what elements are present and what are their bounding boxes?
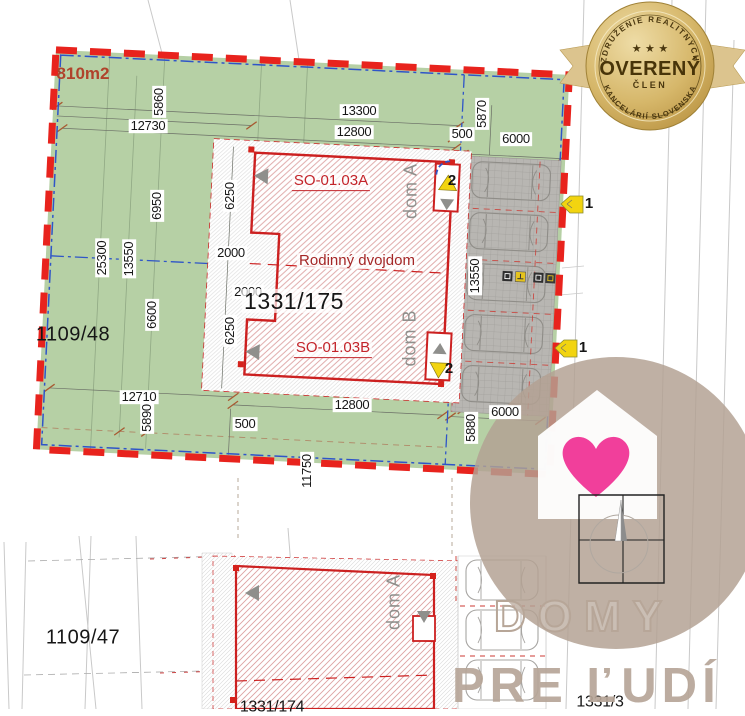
dim-label-5870: 5870 xyxy=(475,98,489,130)
entrance-marker-label-bottom: 2 xyxy=(445,361,453,377)
dim-label-25300: 25300 xyxy=(95,239,109,278)
parcel-label-1109-47: 1109/47 xyxy=(46,628,120,649)
dim-label-6250-bottom: 6250 xyxy=(223,315,237,347)
dim-label-500-bottom: 500 xyxy=(233,417,258,431)
dim-label-11750: 11750 xyxy=(300,452,314,490)
dim-label-12800-top: 12800 xyxy=(335,125,374,139)
dim-label-6000-top: 6000 xyxy=(500,132,532,146)
dim-label-6250-top: 6250 xyxy=(223,180,237,212)
site-plan-page: { "plan": { "area_label": "810m2", "dupl… xyxy=(0,0,745,709)
house-icon xyxy=(538,390,657,519)
entrance-marker-label-top: 2 xyxy=(448,173,456,189)
street-marker-label-bottom: 1 xyxy=(579,340,587,356)
dim-label-13300: 13300 xyxy=(340,104,379,118)
unit-a-code-label: SO-01.03A xyxy=(292,173,370,191)
unit-a-name-label: dom A xyxy=(402,163,421,219)
dim-label-5890: 5890 xyxy=(140,402,154,434)
unit-b-code-label: SO-01.03B xyxy=(294,340,372,358)
parcel-label-1109-48: 1109/48 xyxy=(36,325,110,346)
badge-stars: ★ ★ ★ xyxy=(632,42,669,55)
entrance-b-gray-triangle-icon xyxy=(433,343,448,355)
utility-meter-icons xyxy=(502,271,555,284)
entrance-a-gray-triangle-icon xyxy=(440,199,455,211)
dim-label-5860: 5860 xyxy=(152,86,166,118)
west-door-triangle-icons xyxy=(245,168,268,360)
heart-icon xyxy=(563,437,630,497)
dim-label-2000-a: 2000 xyxy=(215,246,247,260)
bottom-unit-name-label: dom A xyxy=(385,574,404,630)
badge-arc-bottom-text: KANCELÁRIÍ SLOVENSKA xyxy=(602,84,698,121)
parcel-label-1331-175: 1331/175 xyxy=(242,289,346,313)
dim-label-6600: 6600 xyxy=(145,299,159,331)
svg-text:ZDRUŽENIE REALITNÝCH: ZDRUŽENIE REALITNÝCH xyxy=(599,15,701,63)
street-marker-1-icon xyxy=(561,196,583,213)
watermark-text-domy: DOMY xyxy=(494,592,674,642)
verified-badge: ZDRUŽENIE REALITNÝCH KANCELÁRIÍ SLOVENSK… xyxy=(0,0,745,145)
unit-b-name-label: dom B xyxy=(401,309,420,366)
dim-label-13550-left: 13550 xyxy=(122,240,136,279)
dim-label-12800-bottom: 12800 xyxy=(333,398,372,412)
north-needle-icon xyxy=(621,500,627,541)
badge-title: OVERENÝ xyxy=(599,56,700,80)
badge-seal-circle xyxy=(586,2,714,130)
svg-text:KANCELÁRIÍ SLOVENSKA: KANCELÁRIÍ SLOVENSKA xyxy=(602,84,698,121)
badge-ribbon-left xyxy=(560,44,596,89)
street-marker-2-icon xyxy=(555,340,577,357)
badge-arc-top-text: ZDRUŽENIE REALITNÝCH xyxy=(599,15,701,63)
duplex-title-label: Rodinný dvojdom xyxy=(297,253,417,269)
dim-label-6950: 6950 xyxy=(150,190,164,222)
street-marker-label-top: 1 xyxy=(585,196,593,212)
dim-label-5880: 5880 xyxy=(464,412,478,444)
badge-ribbon-right xyxy=(704,44,745,89)
bottom-entrance-triangle-icon xyxy=(417,611,431,623)
dim-label-500-top: 500 xyxy=(450,127,475,141)
street-markers xyxy=(555,196,583,357)
watermark-text-pre-ludi: PRE ĽUDÍ xyxy=(452,658,721,714)
dimension-lines xyxy=(41,84,564,470)
parcel-label-bottom-partial: 1331/174 xyxy=(240,700,304,716)
bottom-duplex-building xyxy=(236,566,434,709)
dim-label-6000-bottom: 6000 xyxy=(489,405,521,419)
dim-label-12730: 12730 xyxy=(129,119,168,133)
dim-label-13550-right: 13550 xyxy=(468,257,482,296)
badge-subtitle: ČLEN xyxy=(633,79,668,90)
plot-area-label: 810m2 xyxy=(57,65,110,83)
